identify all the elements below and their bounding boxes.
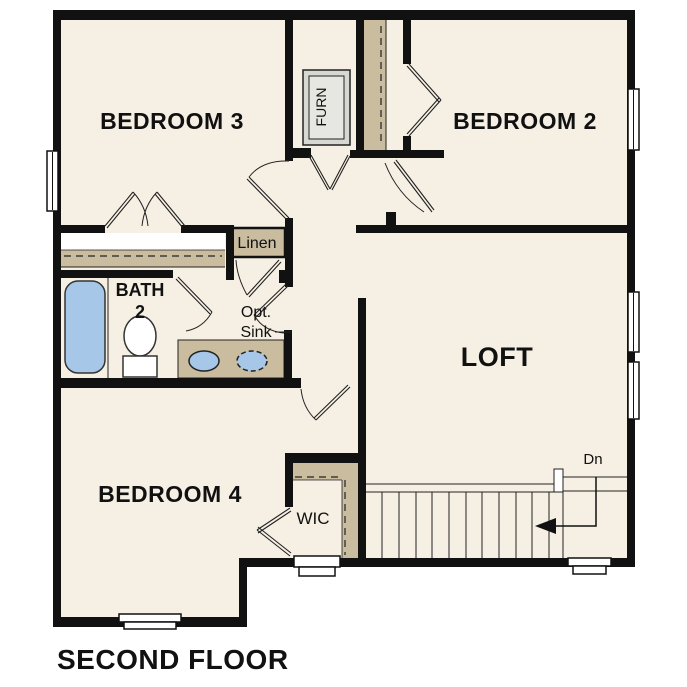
linen-label: Linen	[237, 235, 276, 252]
optional-sink	[237, 351, 267, 371]
sink	[189, 351, 219, 371]
bedroom3-closet	[61, 250, 225, 267]
opt-sink-label-line2: Sink	[240, 324, 272, 341]
wic-window	[294, 556, 340, 576]
plan-title: SECOND FLOOR	[57, 644, 289, 675]
loft-window-lower	[628, 362, 639, 419]
bathtub	[65, 281, 105, 373]
stair-newel	[554, 469, 563, 492]
bath-label-line2: 2	[135, 302, 145, 322]
bedroom3-label: BEDROOM 3	[100, 108, 244, 134]
bedroom4-label: BEDROOM 4	[98, 481, 242, 507]
toilet-tank	[123, 356, 157, 377]
floor-plan-page: BEDROOM 3 BEDROOM 2 BEDROOM 4 LOFT BATH …	[0, 0, 687, 687]
opt-sink-label-line1: Opt.	[241, 304, 271, 321]
bedroom4-window	[119, 614, 181, 629]
floor-plan-canvas: BEDROOM 3 BEDROOM 2 BEDROOM 4 LOFT BATH …	[0, 0, 687, 687]
loft-label: LOFT	[461, 342, 533, 372]
stair-down-label: Dn	[583, 451, 602, 468]
wic-label: WIC	[296, 509, 329, 528]
bedroom2-window	[628, 89, 639, 150]
toilet-bowl	[124, 316, 156, 356]
furnace-label: FURN	[313, 88, 329, 127]
stair-landing-window	[568, 558, 611, 574]
bedroom3-window	[47, 151, 58, 211]
bath-label-line1: BATH	[116, 280, 165, 300]
loft-window-upper	[628, 292, 639, 352]
bedroom2-label: BEDROOM 2	[453, 108, 597, 134]
bedroom2-closet	[364, 20, 386, 150]
